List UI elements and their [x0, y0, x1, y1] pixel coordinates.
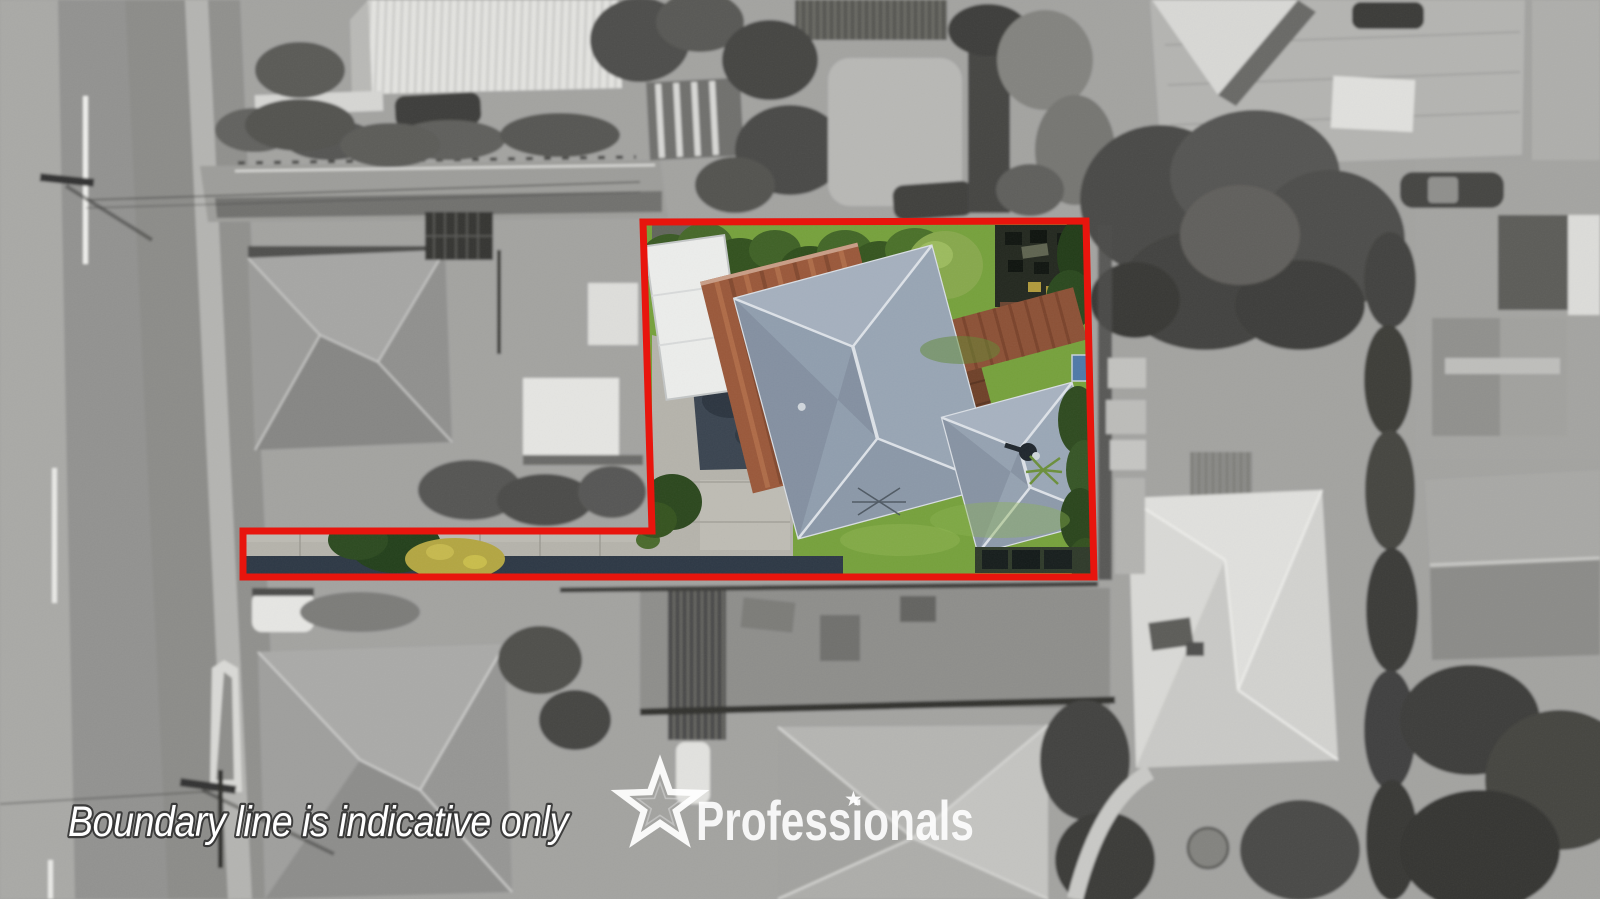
logo-mini-star-icon: ★ [844, 787, 863, 811]
aerial-photo-canvas: Boundary line is indicative only Profess… [0, 0, 1600, 899]
disclaimer-watermark: Boundary line is indicative only [68, 798, 571, 846]
photo-grain [0, 0, 1600, 899]
aerial-photo: Boundary line is indicative only Profess… [0, 0, 1600, 899]
brand-logo-text: Professionals [696, 789, 974, 852]
